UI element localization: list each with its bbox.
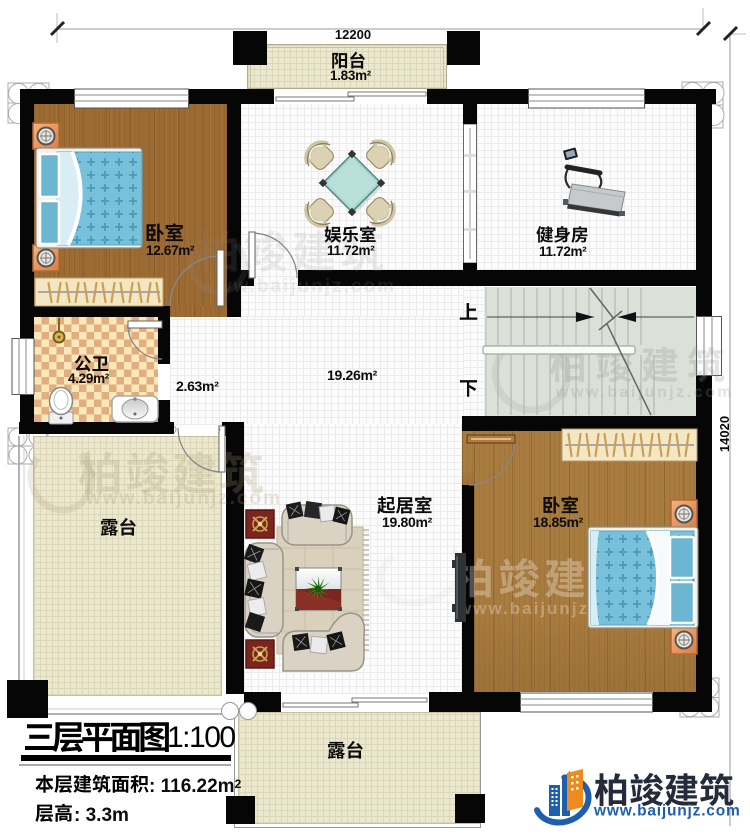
svg-text:www.baijunjz.com: www.baijunjz.com — [555, 384, 734, 401]
svg-text:www.baijunjz.com: www.baijunjz.com — [199, 276, 396, 297]
svg-text:www.baijunjz.com: www.baijunjz.com — [593, 803, 741, 820]
svg-text:www.baijunjz.com: www.baijunjz.com — [85, 488, 282, 509]
